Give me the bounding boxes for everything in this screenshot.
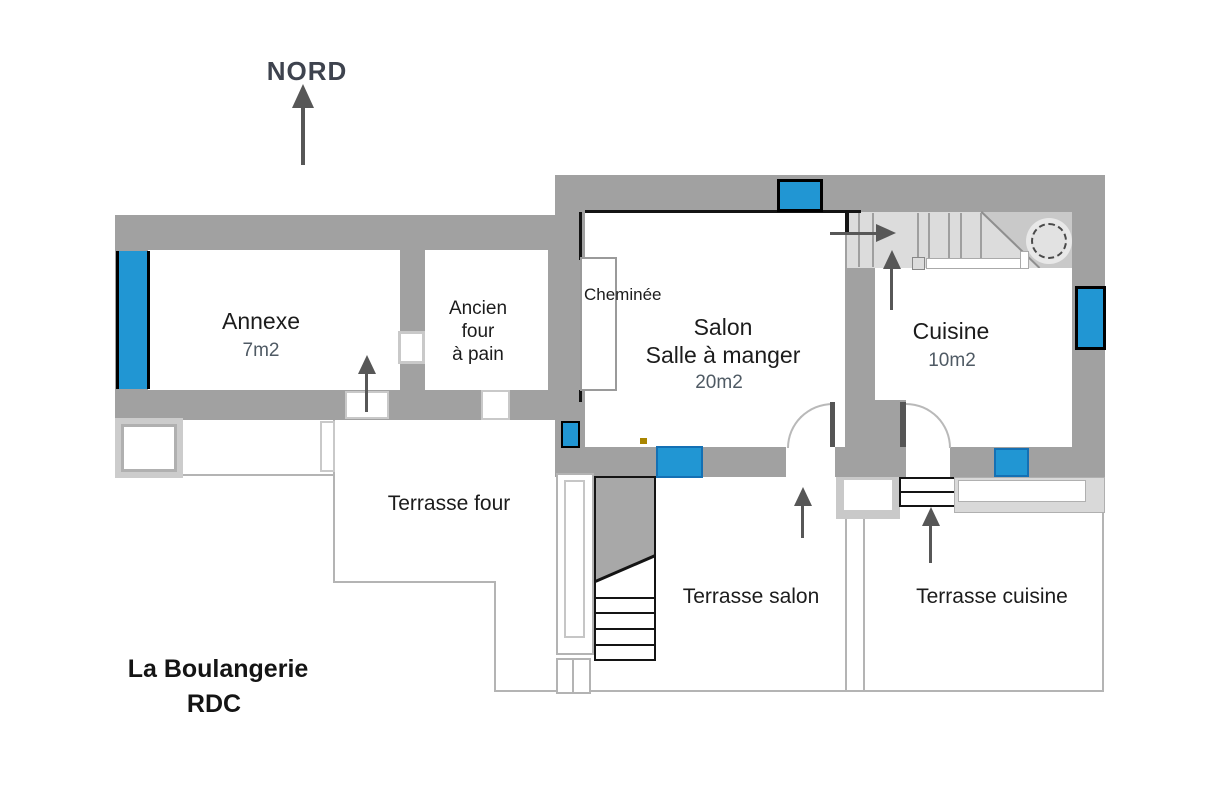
- stair-circle-icon: [1031, 223, 1067, 259]
- terrace-path-line: [845, 518, 847, 692]
- cuisine-label: Cuisine: [913, 318, 990, 345]
- terrace-post-divider: [572, 660, 574, 692]
- up-arrow-shaft: [929, 523, 932, 563]
- up-arrow-shaft: [801, 503, 804, 538]
- salon-label: Salon: [694, 314, 753, 341]
- window: [561, 421, 580, 448]
- terrace-railing-inner: [564, 480, 585, 638]
- terrasse-salon-label: Terrasse salon: [683, 585, 820, 609]
- wall-segment: [115, 215, 555, 250]
- cheminee-label: Cheminée: [584, 285, 662, 305]
- right-arrow-icon: [876, 224, 896, 242]
- ext-stair-tread: [595, 597, 655, 599]
- door-opening: [481, 390, 510, 420]
- ancien-four-label-2: four: [462, 321, 495, 343]
- floor-plan: NORD Annexe 7m2 Ancien four à pain Chemi…: [0, 0, 1224, 786]
- right-arrow-shaft: [830, 232, 878, 235]
- window: [994, 448, 1029, 477]
- terrasse-four-label: Terrasse four: [388, 492, 511, 516]
- door-opening: [320, 421, 335, 472]
- ancien-four-label-1: Ancien: [449, 298, 507, 320]
- terrace-boundary: [494, 581, 496, 692]
- door-leaf: [830, 402, 835, 447]
- stair-tread: [872, 213, 874, 267]
- compass-label: NORD: [267, 56, 348, 87]
- terrace-boundary: [333, 581, 495, 583]
- ext-stair-tread: [595, 628, 655, 630]
- window: [656, 446, 703, 478]
- window: [777, 179, 823, 212]
- stair-tread: [858, 213, 860, 267]
- door-gap: [786, 447, 835, 477]
- stair-railing-post: [1020, 251, 1029, 269]
- annexe-label: Annexe: [222, 308, 300, 335]
- cuisine-step: [899, 491, 956, 507]
- ext-stair-tread: [595, 644, 655, 646]
- salon-area-label: 20m2: [695, 372, 743, 394]
- marker-dot: [640, 438, 647, 444]
- salon-wall-line: [579, 212, 582, 260]
- window: [116, 251, 150, 389]
- door-opening: [398, 331, 425, 364]
- annexe-area-label: 7m2: [243, 340, 280, 362]
- ancien-four-label-3: à pain: [452, 344, 504, 366]
- up-arrow-shaft: [890, 266, 893, 310]
- plan-title-line1: La Boulangerie: [128, 655, 309, 684]
- salon-wall-line: [579, 390, 582, 402]
- up-arrow-shaft: [365, 370, 368, 412]
- stair-newel: [912, 257, 925, 270]
- stair-railing: [926, 258, 1026, 269]
- salon-sublabel: Salle à manger: [646, 342, 801, 369]
- cuisine-area-label: 10m2: [928, 350, 976, 372]
- window: [1075, 286, 1106, 350]
- terrace-path-line: [863, 518, 865, 692]
- cheminee-box: [580, 257, 617, 391]
- ext-stair-tread: [595, 612, 655, 614]
- door-gap: [906, 445, 950, 477]
- plan-title-line2: RDC: [187, 690, 241, 719]
- north-arrow-shaft: [301, 102, 305, 165]
- window: [121, 424, 177, 472]
- wall-segment: [555, 175, 1105, 212]
- wall-line: [845, 210, 849, 232]
- wall-segment: [400, 250, 425, 390]
- door-leaf: [900, 402, 906, 447]
- bench: [958, 480, 1086, 502]
- terrasse-cuisine-label: Terrasse cuisine: [916, 585, 1068, 609]
- ancien-four-floor: [425, 250, 548, 390]
- porch-step-inner: [844, 480, 892, 510]
